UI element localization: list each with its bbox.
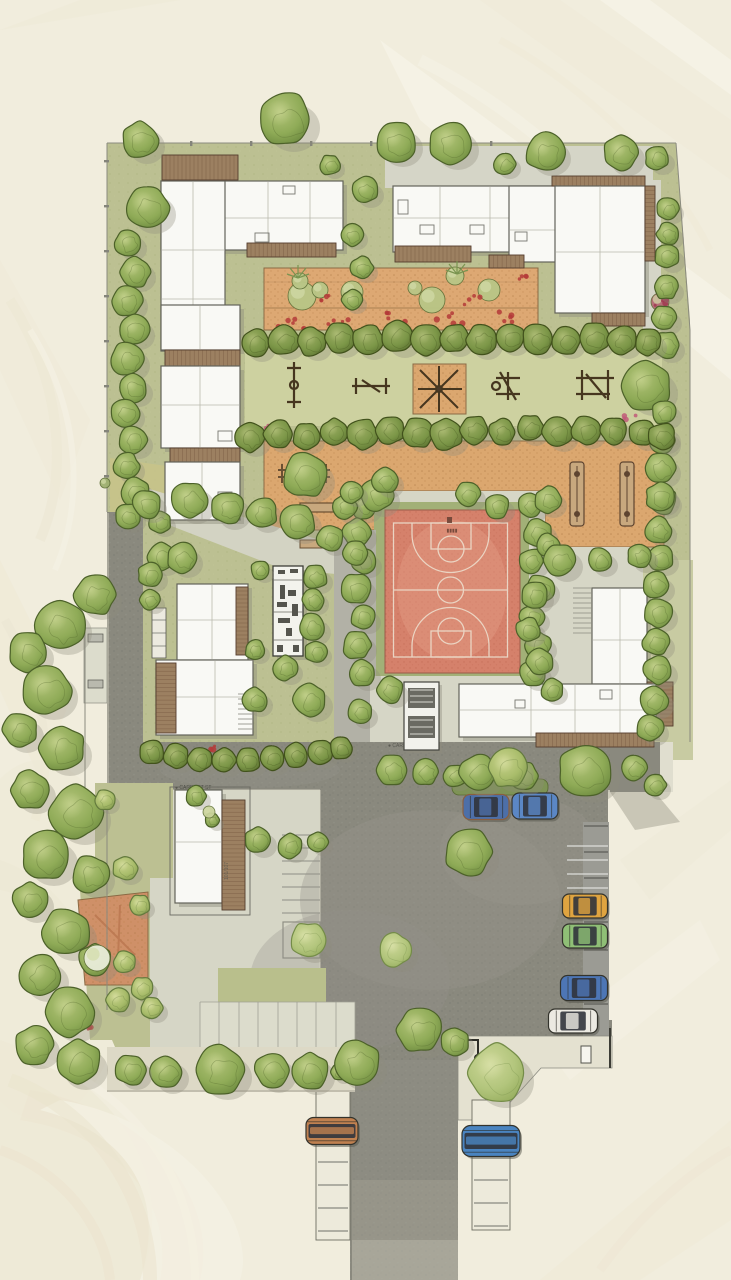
svg-text:▮▮▮▮: ▮▮▮▮ — [446, 528, 457, 534]
svg-text:101/107: 101/107 — [224, 862, 230, 880]
